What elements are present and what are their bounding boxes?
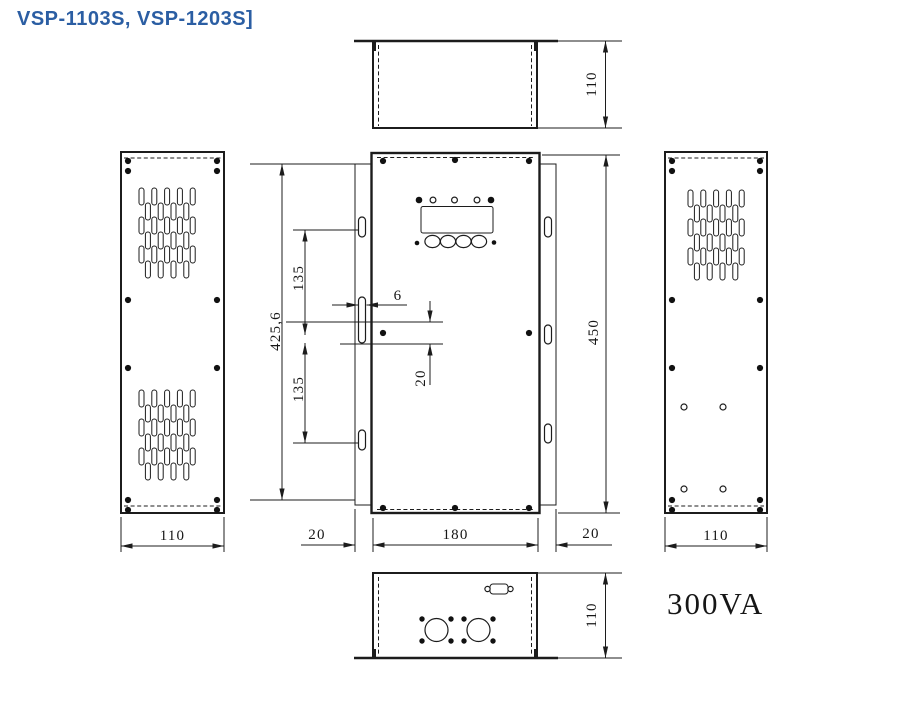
dim-upper-hole-spacing: 135 [291, 230, 359, 335]
dim-right-width-label: 110 [703, 528, 729, 544]
dim-top-depth: 110 [584, 41, 606, 128]
dim-right-flange-label: 20 [582, 526, 599, 542]
bottom-view-body [373, 573, 537, 658]
dim-bottom-widths: 20 180 20 [301, 509, 612, 552]
keyhole-slot [359, 297, 366, 343]
dim-panel-width-label: 180 [442, 527, 468, 543]
dim-slot-height-label: 20 [413, 369, 429, 386]
vent-grille-top [688, 190, 744, 280]
dim-upper-hole-spacing-label: 135 [291, 265, 307, 291]
power-rating-label: 300VA [667, 586, 764, 621]
round-connector-right [461, 616, 495, 643]
vent-grille-upper [139, 188, 195, 278]
right-view-screws [669, 158, 763, 513]
dim-panel-height-label: 450 [586, 319, 602, 345]
panel-button [471, 235, 486, 247]
front-panel-screws [380, 157, 532, 511]
led-indicator-row [416, 197, 495, 204]
dim-bracket-height: 425,6 [250, 164, 356, 500]
dim-slot-width: 6 [332, 288, 407, 305]
drawing-page: VSP-1103S, VSP-1203S] [0, 0, 900, 713]
front-view: 425,6 135 135 6 20 [250, 153, 620, 552]
right-side-view: 110 [665, 152, 767, 552]
panel-button [456, 235, 471, 247]
dim-panel-height: 450 [542, 155, 620, 513]
dim-left-flange-label: 20 [308, 527, 325, 543]
flange-slots [359, 217, 552, 450]
dim-right-width: 110 [665, 517, 767, 552]
panel-button [425, 235, 440, 247]
dim-bracket-height-label: 425,6 [268, 311, 284, 351]
dim-top-depth-label: 110 [584, 71, 600, 97]
top-view: 110 [354, 41, 622, 128]
dim-left-width-label: 110 [160, 528, 186, 544]
round-connector-left [419, 616, 453, 643]
dim-lower-hole-spacing-label: 135 [291, 376, 307, 402]
dim-lower-hole-spacing: 135 [291, 343, 359, 443]
dim-slot-width-label: 6 [394, 288, 403, 304]
vent-grille-lower [139, 390, 195, 480]
right-view-pilot-holes [681, 404, 726, 492]
control-panel [415, 197, 497, 248]
top-view-body [373, 41, 537, 128]
dsub-connector [485, 584, 513, 594]
dim-left-width: 110 [121, 517, 224, 552]
dimension-drawing: 110 110 [0, 0, 900, 713]
lcd-display [421, 207, 493, 234]
panel-button [440, 235, 455, 247]
bottom-view: 110 [354, 573, 622, 658]
dim-bottom-depth: 110 [584, 573, 606, 658]
dim-bottom-depth-label: 110 [584, 602, 600, 628]
left-side-view: 110 [121, 152, 224, 552]
button-row [415, 235, 497, 247]
